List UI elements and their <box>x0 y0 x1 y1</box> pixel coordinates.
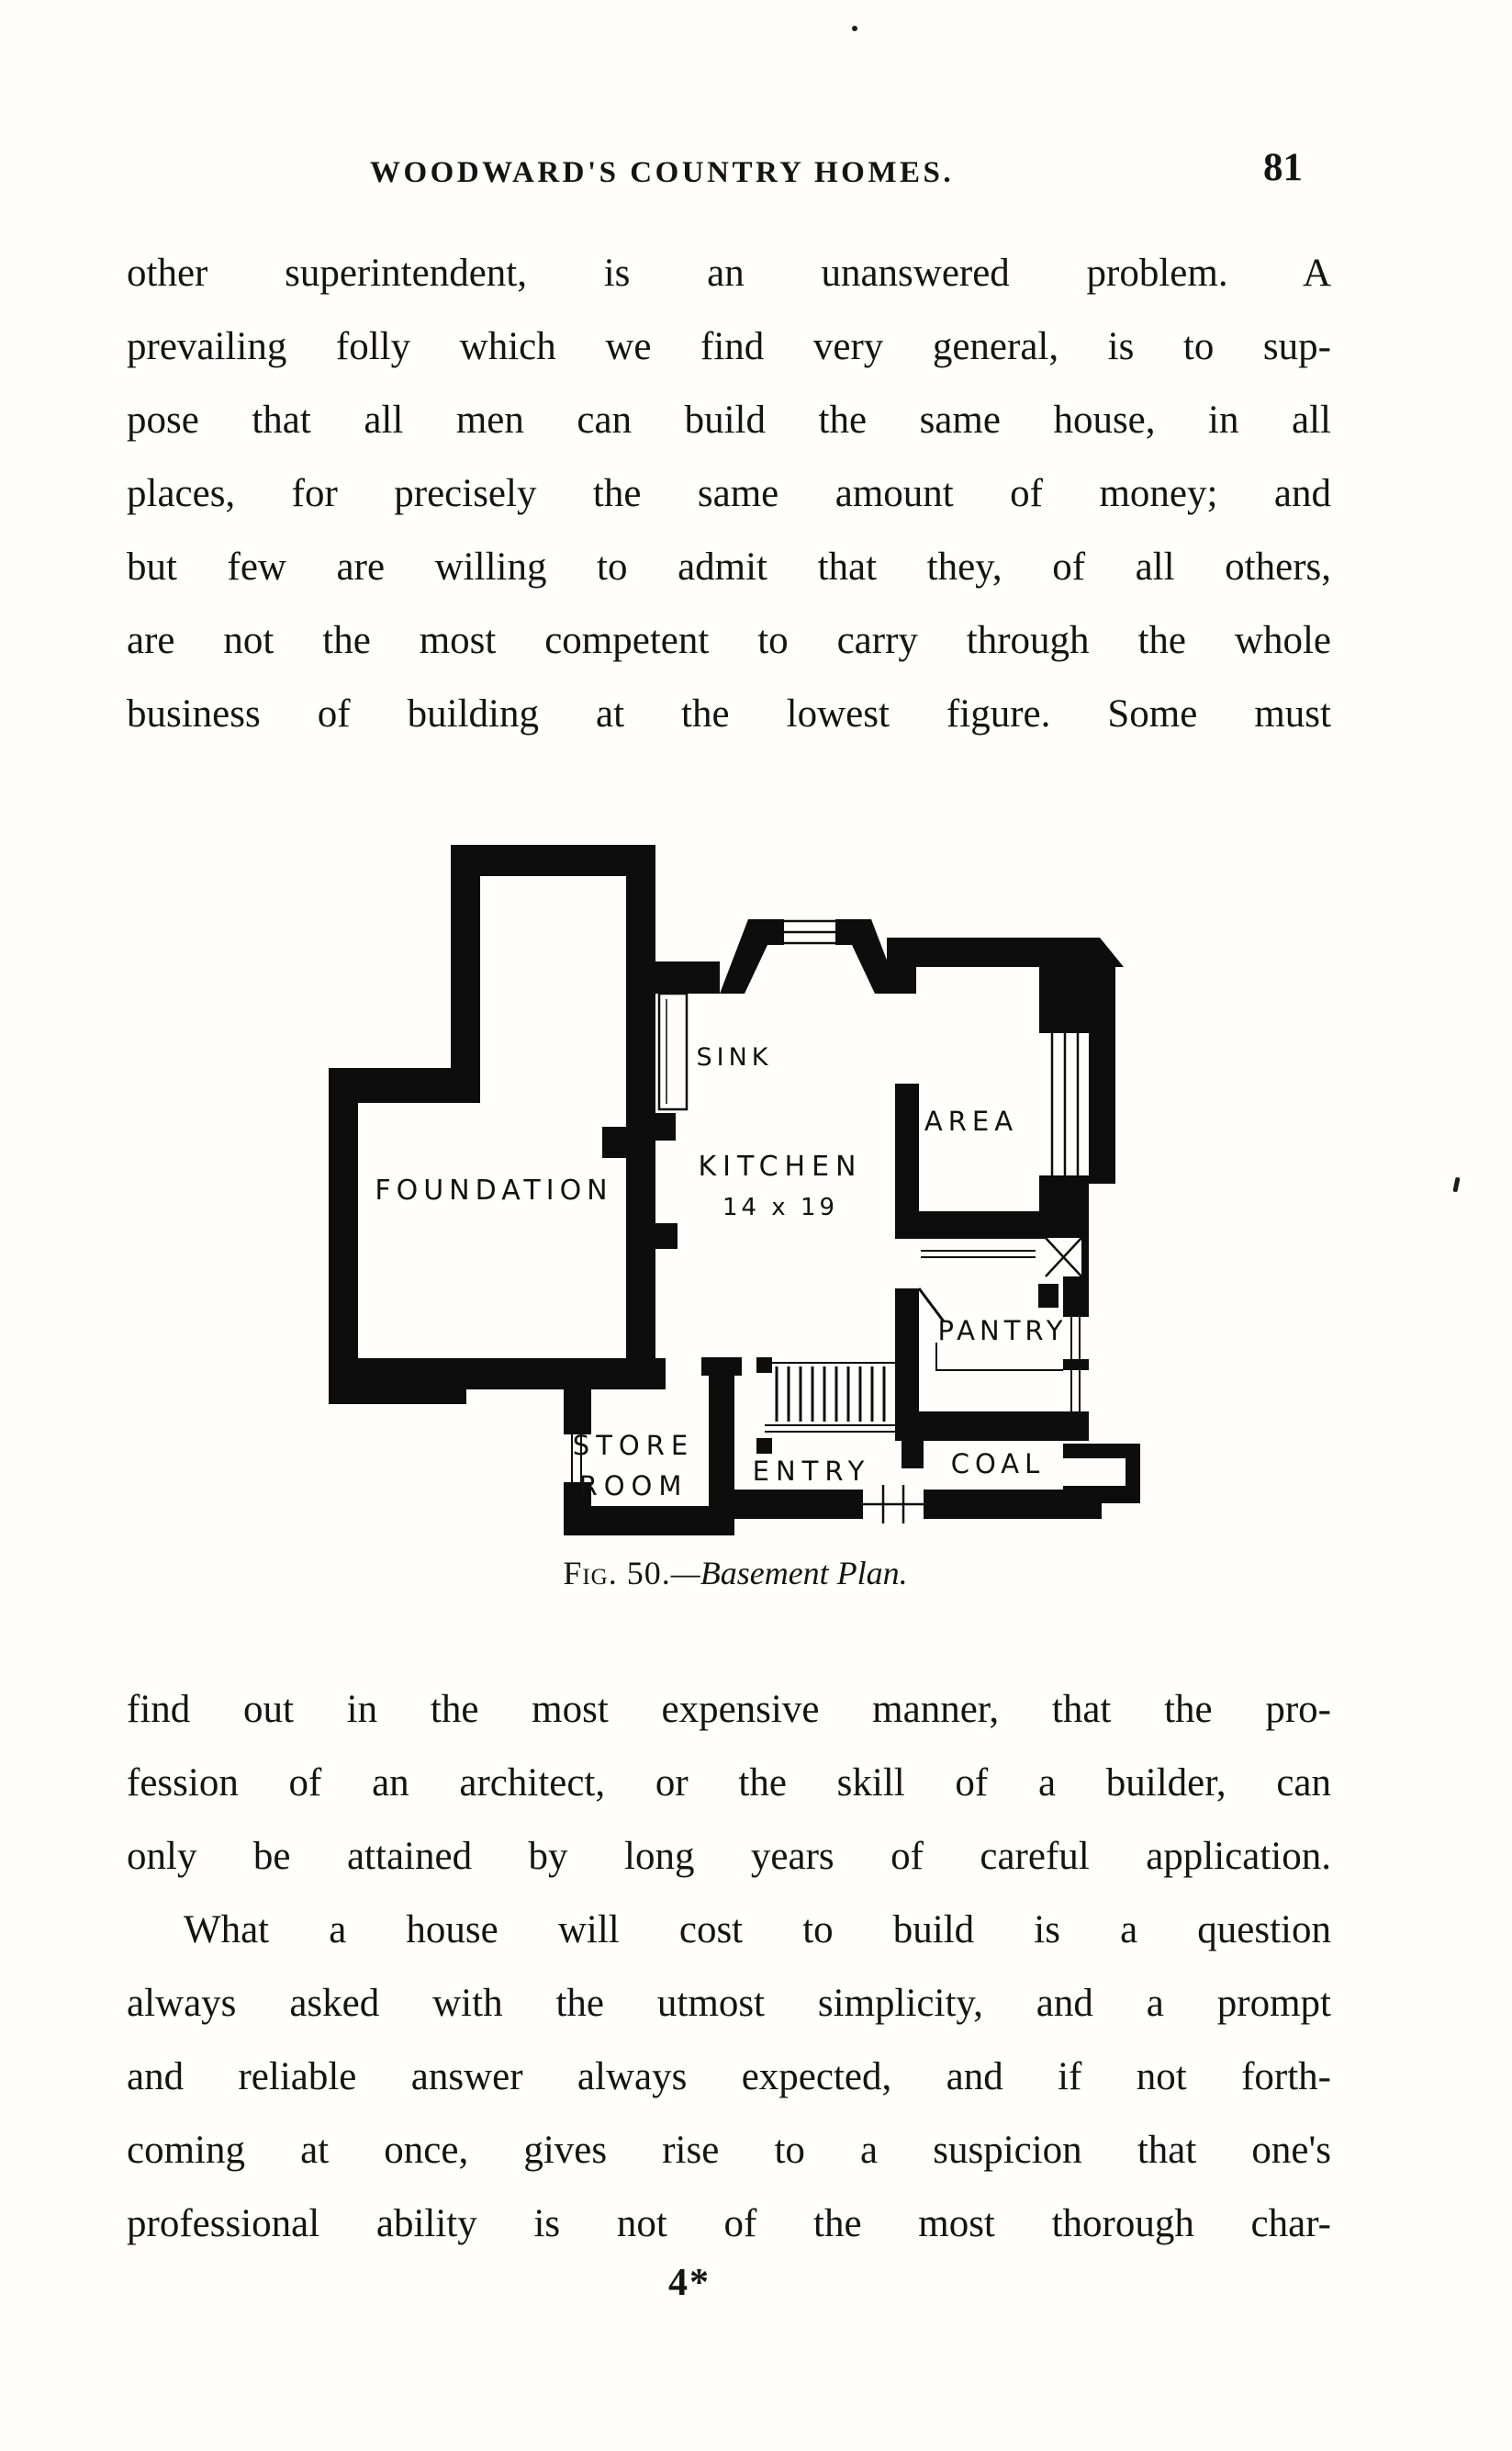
page-number: 81 <box>1263 145 1303 190</box>
text-line: pose that all men can build the same hou… <box>127 384 1331 457</box>
ink-speck <box>852 26 857 31</box>
room-label-sink: SINK <box>696 1043 772 1072</box>
coal-chute-opening <box>1058 1458 1126 1486</box>
pantry-window-opening <box>1063 1370 1089 1411</box>
text-line: places, for precisely the same amount of… <box>127 457 1331 531</box>
room-label-store: STORE <box>573 1430 694 1461</box>
basement-floor-plan: SINK KITCHEN 14 x 19 AREA FOUNDATION PAN… <box>323 810 1148 1537</box>
paragraph-3: What a house will cost to build is a que… <box>127 1894 1331 2261</box>
text-line: prevailing folly which we find very gene… <box>127 310 1331 384</box>
text-line: but few are willing to admit that they, … <box>127 531 1331 604</box>
text-line: fession of an architect, or the skill of… <box>127 1747 1331 1820</box>
text-line: are not the most competent to carry thro… <box>127 604 1331 678</box>
text-line: always asked with the utmost simplicity,… <box>127 1967 1331 2041</box>
text-line: business of building at the lowest figur… <box>127 678 1331 751</box>
paragraph-2: find out in the most expensive manner, t… <box>127 1673 1331 1894</box>
text-line: find out in the most expensive manner, t… <box>127 1673 1331 1747</box>
ink-speck <box>1452 1177 1460 1193</box>
running-header-title: WOODWARD'S COUNTRY HOMES. <box>370 156 954 190</box>
signature-mark: 4* <box>668 2261 711 2305</box>
text-line: professional ability is not of the most … <box>127 2187 1331 2261</box>
figure-caption-number: Fig. 50. <box>563 1555 670 1591</box>
figure-basement-plan: SINK KITCHEN 14 x 19 AREA FOUNDATION PAN… <box>323 810 1148 1537</box>
room-label-entry: ENTRY <box>753 1456 871 1487</box>
room-label-kitchen: KITCHEN <box>699 1151 863 1183</box>
text-line: and reliable answer always expected, and… <box>127 2041 1331 2114</box>
bay-interior <box>745 945 875 994</box>
sink-fixture <box>659 994 687 1109</box>
text-line: other superintendent, is an unanswered p… <box>127 237 1331 310</box>
room-label-area: AREA <box>924 1106 1018 1137</box>
room-label-kitchen-size: 14 x 19 <box>722 1194 838 1221</box>
room-label-room: ROOM <box>579 1470 689 1501</box>
room-label-foundation: FOUNDATION <box>375 1175 612 1207</box>
figure-caption: Fig. 50.—Basement Plan. <box>323 1554 1148 1592</box>
text-line: only be attained by long years of carefu… <box>127 1820 1331 1894</box>
figure-caption-title: —Basement Plan. <box>671 1555 908 1591</box>
room-label-pantry: PANTRY <box>938 1315 1068 1346</box>
stair-treads <box>777 1366 884 1422</box>
text-line: coming at once, gives rise to a suspicio… <box>127 2114 1331 2187</box>
text-line: What a house will cost to build is a que… <box>127 1894 1331 1967</box>
book-page: WOODWARD'S COUNTRY HOMES. 81 other super… <box>0 0 1512 2451</box>
room-label-coal: COAL <box>951 1448 1046 1479</box>
paragraph-1: other superintendent, is an unanswered p… <box>127 237 1331 751</box>
